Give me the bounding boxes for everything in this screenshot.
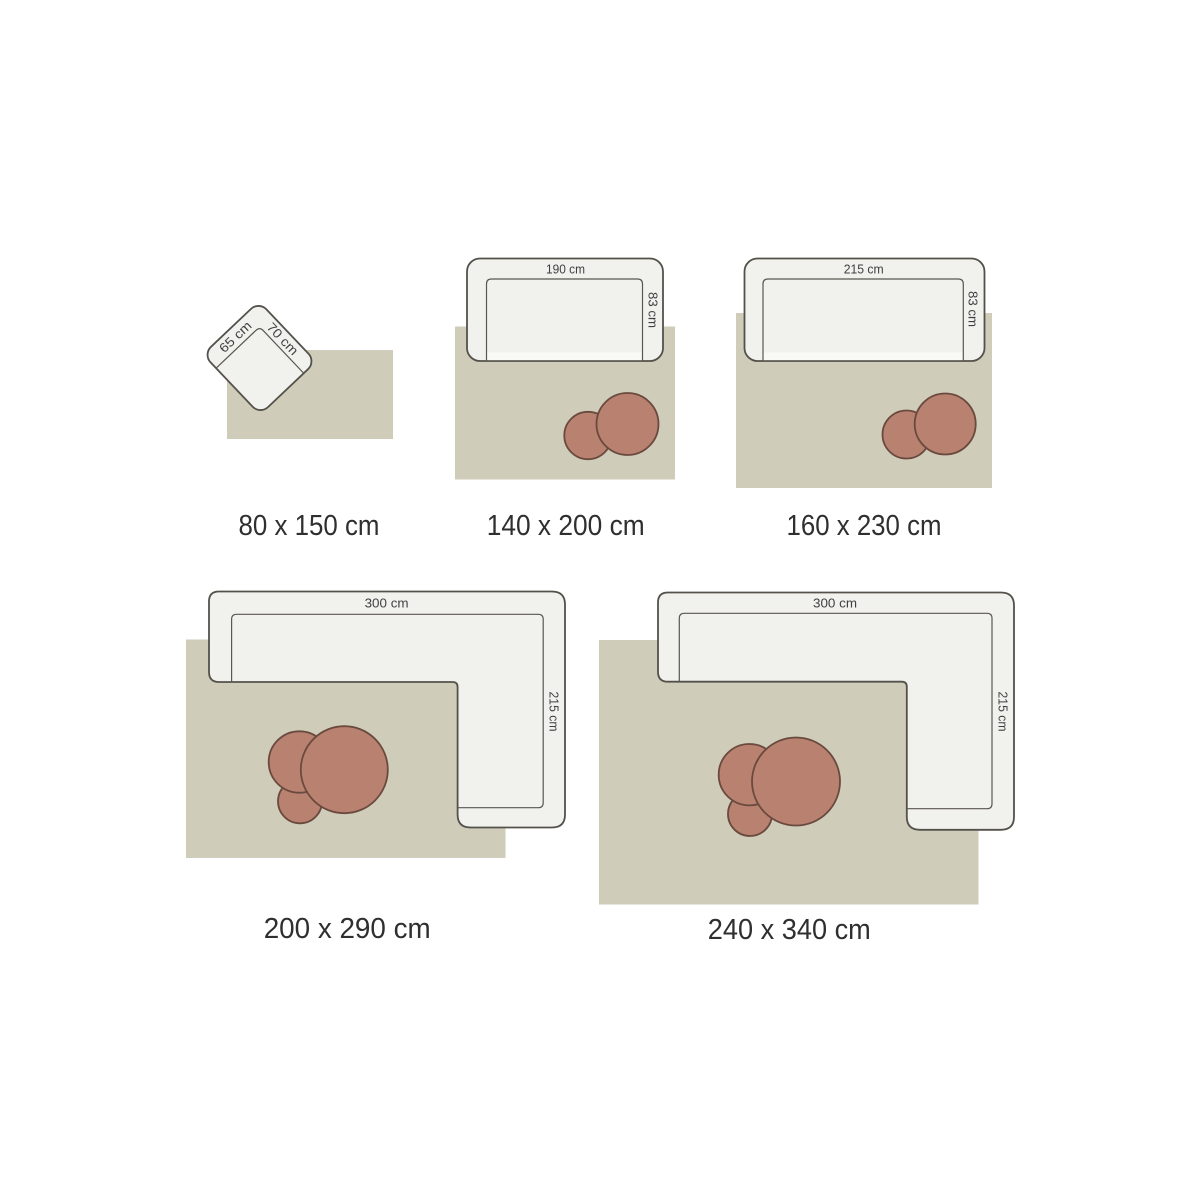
- svg-text:215 cm: 215 cm: [547, 692, 562, 732]
- svg-text:190 cm: 190 cm: [546, 262, 585, 277]
- svg-text:83 cm: 83 cm: [966, 291, 981, 327]
- svg-text:215 cm: 215 cm: [995, 692, 1010, 732]
- svg-text:215 cm: 215 cm: [844, 262, 884, 277]
- svg-text:240 x 340 cm: 240 x 340 cm: [708, 914, 871, 946]
- svg-text:80 x 150 cm: 80 x 150 cm: [239, 510, 380, 542]
- svg-text:160 x 230 cm: 160 x 230 cm: [787, 510, 942, 542]
- svg-text:140 x 200 cm: 140 x 200 cm: [487, 510, 645, 542]
- svg-text:300 cm: 300 cm: [365, 596, 409, 611]
- svg-text:200 x 290 cm: 200 x 290 cm: [264, 913, 431, 945]
- svg-text:300 cm: 300 cm: [813, 596, 857, 611]
- svg-text:83 cm: 83 cm: [645, 292, 660, 328]
